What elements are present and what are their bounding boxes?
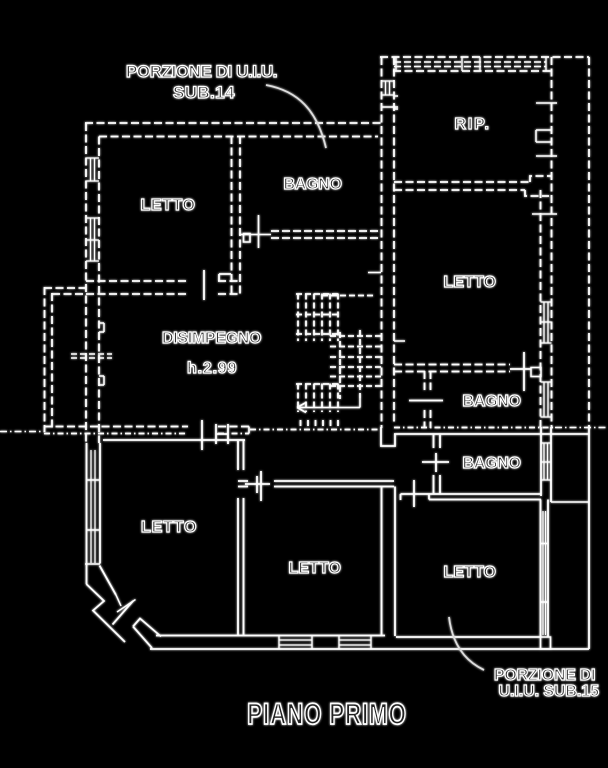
svg-text:DISIMPEGNO: DISIMPEGNO — [162, 330, 262, 347]
svg-text:SUB.14: SUB.14 — [173, 83, 235, 102]
svg-text:LETTO: LETTO — [444, 274, 497, 291]
svg-text:BAGNO: BAGNO — [463, 455, 522, 472]
svg-text:PIANO PRIMO: PIANO PRIMO — [247, 697, 406, 731]
svg-text:LETTO: LETTO — [444, 564, 497, 581]
svg-text:PORZIONE DI U.I.U.: PORZIONE DI U.I.U. — [126, 62, 278, 81]
svg-text:LETTO: LETTO — [141, 197, 196, 214]
svg-text:BAGNO: BAGNO — [284, 176, 343, 193]
svg-text:LETTO: LETTO — [289, 560, 342, 577]
svg-text:BAGNO: BAGNO — [463, 393, 522, 410]
svg-text:PORZIONE DI: PORZIONE DI — [494, 667, 596, 684]
svg-text:RIP.: RIP. — [455, 116, 490, 133]
svg-text:h.2.99: h.2.99 — [187, 360, 237, 377]
svg-text:U.I.U. SUB.15: U.I.U. SUB.15 — [499, 683, 600, 700]
svg-text:LETTO: LETTO — [141, 519, 197, 536]
